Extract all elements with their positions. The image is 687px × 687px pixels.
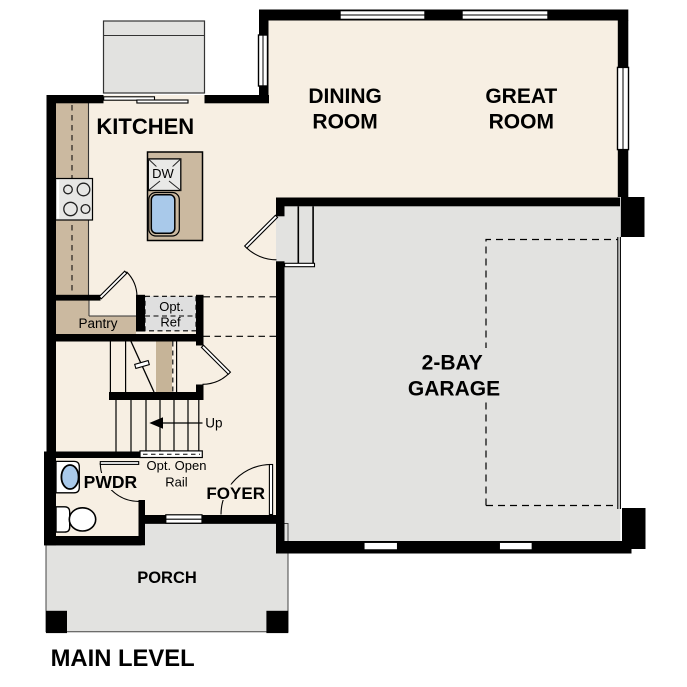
svg-text:ROOM: ROOM [489,111,554,134]
svg-text:KITCHEN: KITCHEN [96,114,194,139]
svg-text:MAIN LEVEL: MAIN LEVEL [51,645,195,672]
svg-text:DINING: DINING [308,85,382,108]
svg-text:Opt.: Opt. [159,299,184,314]
svg-text:GREAT: GREAT [485,85,557,108]
svg-text:GARAGE: GARAGE [408,377,500,400]
svg-text:2-BAY: 2-BAY [422,351,483,374]
svg-text:ROOM: ROOM [312,111,377,134]
svg-text:FOYER: FOYER [206,484,265,503]
svg-text:PWDR: PWDR [84,472,138,492]
svg-text:Up: Up [205,415,222,430]
svg-text:Pantry: Pantry [78,316,117,331]
svg-text:Opt. Open: Opt. Open [147,458,207,473]
svg-text:Ref: Ref [160,315,181,330]
svg-text:DW: DW [152,166,174,181]
svg-text:Rail: Rail [165,474,188,489]
svg-text:PORCH: PORCH [137,569,197,587]
